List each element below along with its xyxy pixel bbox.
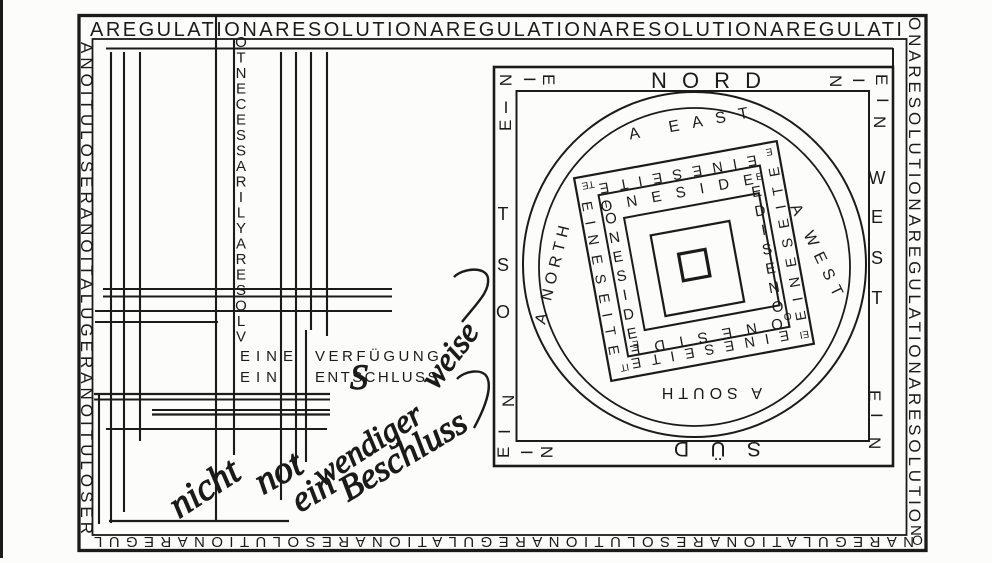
- svg-text:nicht: nicht: [161, 449, 249, 526]
- svg-text:EIN: EIN: [240, 369, 283, 386]
- svg-text:E: E: [755, 171, 764, 183]
- svg-text:I: I: [849, 78, 868, 83]
- svg-text:O: O: [235, 298, 247, 315]
- svg-text:T: T: [872, 288, 883, 308]
- svg-text:ANOITULOSERANOITALUGERANOITULO: ANOITULOSERANOITALUGERANOITULOSER: [77, 42, 96, 534]
- svg-text:I: I: [504, 98, 509, 117]
- svg-text:V: V: [236, 329, 246, 346]
- svg-text:N: N: [865, 437, 884, 449]
- svg-text:E: E: [612, 248, 625, 267]
- svg-text:I: I: [622, 287, 629, 304]
- svg-text:TE: TE: [580, 178, 595, 191]
- svg-text:ONARESOLUTIONAREGULATIONARESOL: ONARESOLUTIONAREGULATIONARESOLUTIO: [905, 17, 924, 522]
- svg-text:N: N: [537, 446, 556, 458]
- svg-text:S: S: [236, 282, 246, 299]
- svg-text:A WEST: A WEST: [786, 201, 849, 306]
- svg-text:I: I: [867, 413, 886, 418]
- svg-text:E: E: [236, 112, 246, 129]
- svg-text:N: N: [870, 116, 889, 128]
- svg-text:O: O: [770, 298, 785, 317]
- svg-text:E: E: [494, 447, 513, 458]
- svg-text:N: N: [767, 279, 781, 298]
- svg-text:O: O: [496, 302, 510, 322]
- svg-text:I: I: [517, 450, 536, 455]
- svg-text:E: E: [539, 74, 558, 85]
- svg-text:I: I: [239, 189, 243, 206]
- svg-text:C: C: [236, 96, 247, 113]
- svg-text:NAREGULATIONARESOLUTIONAREGULA: NAREGULATIONARESOLUTIONAREGULATIONARESOL…: [94, 533, 914, 550]
- svg-text:S: S: [497, 255, 509, 275]
- svg-text:Y: Y: [236, 220, 246, 237]
- svg-text:D: D: [622, 305, 636, 324]
- svg-text:A SOUTH: A SOUTH: [657, 384, 762, 401]
- svg-text:T: T: [498, 204, 509, 224]
- svg-text:S: S: [871, 248, 883, 268]
- svg-text:EIN: EIN: [240, 348, 283, 365]
- svg-text:N: N: [608, 229, 622, 248]
- svg-text:E: E: [764, 260, 777, 279]
- svg-text:EI: EI: [799, 328, 810, 341]
- svg-text:L: L: [237, 205, 245, 222]
- svg-text:O: O: [235, 34, 247, 51]
- svg-text:I: I: [873, 98, 892, 103]
- svg-text:E: E: [764, 145, 773, 157]
- svg-text:R: R: [236, 251, 247, 268]
- svg-text:E: E: [865, 390, 884, 401]
- svg-text:E: E: [750, 183, 763, 202]
- svg-text:AREGULATIONARESOLUTIONAREGULAT: AREGULATIONARESOLUTIONAREGULATIONARESOLU…: [90, 19, 902, 41]
- svg-text:S: S: [236, 143, 246, 160]
- svg-text:O: O: [912, 532, 923, 548]
- svg-text:SÜD: SÜD: [656, 437, 761, 460]
- svg-text:N: N: [496, 74, 515, 86]
- svg-text:I: I: [495, 429, 514, 434]
- svg-text:EINESEITE: EINESEITE: [630, 326, 791, 371]
- svg-text:S: S: [236, 127, 246, 144]
- svg-text:A: A: [236, 236, 246, 253]
- svg-text:E: E: [496, 120, 515, 131]
- svg-text:O: O: [604, 209, 619, 228]
- svg-text:E: E: [872, 74, 891, 85]
- svg-text:W: W: [869, 168, 886, 188]
- svg-text:A: A: [236, 158, 246, 175]
- svg-text:E: E: [236, 81, 246, 98]
- svg-text:S: S: [761, 240, 774, 259]
- svg-text:IT: IT: [619, 361, 630, 373]
- svg-text:S: S: [350, 357, 368, 397]
- svg-text:L: L: [237, 313, 245, 330]
- svg-text:I: I: [520, 77, 539, 82]
- svg-text:E: E: [871, 207, 883, 227]
- svg-text:D: D: [753, 202, 767, 221]
- svg-text:N: N: [499, 395, 518, 407]
- svg-text:T: T: [236, 50, 245, 67]
- svg-text:N: N: [826, 75, 845, 87]
- svg-text:E: E: [283, 348, 293, 365]
- svg-text:R: R: [236, 174, 247, 191]
- svg-text:NORD: NORD: [651, 68, 779, 93]
- svg-text:O: O: [782, 309, 792, 321]
- svg-text:N: N: [236, 65, 247, 82]
- svg-text:S: S: [615, 267, 628, 286]
- svg-text:E: E: [236, 267, 246, 284]
